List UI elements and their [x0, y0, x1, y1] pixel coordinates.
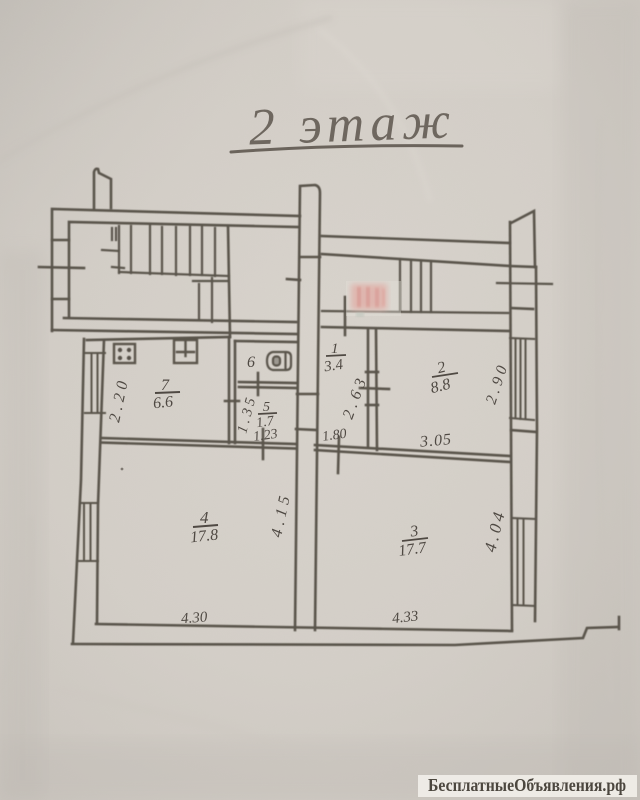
- svg-text:6: 6: [247, 354, 255, 371]
- svg-text:4: 4: [200, 508, 209, 527]
- svg-text:БесплатныеОбъявления.рф: БесплатныеОбъявления.рф: [428, 775, 626, 795]
- svg-text:7: 7: [161, 377, 170, 394]
- svg-text:17.8: 17.8: [189, 526, 219, 546]
- svg-text:3.05: 3.05: [418, 431, 452, 451]
- svg-text:4.30: 4.30: [181, 609, 209, 627]
- svg-text:4.33: 4.33: [391, 608, 419, 627]
- svg-text:3.4: 3.4: [322, 357, 344, 376]
- svg-text:6.6: 6.6: [152, 393, 174, 412]
